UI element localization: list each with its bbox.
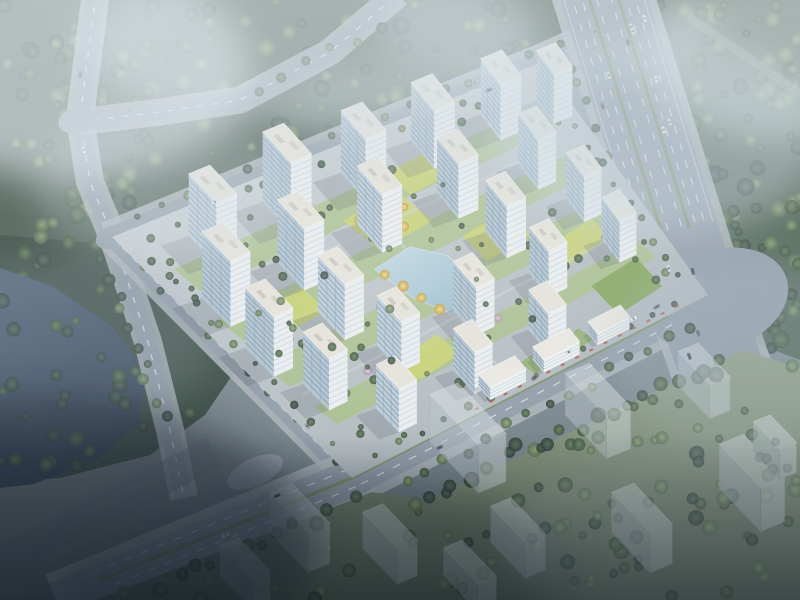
viewport xyxy=(0,0,800,600)
aerial-rendering xyxy=(0,0,800,600)
vignette xyxy=(0,0,800,600)
aerial-rendering-container xyxy=(0,0,800,600)
